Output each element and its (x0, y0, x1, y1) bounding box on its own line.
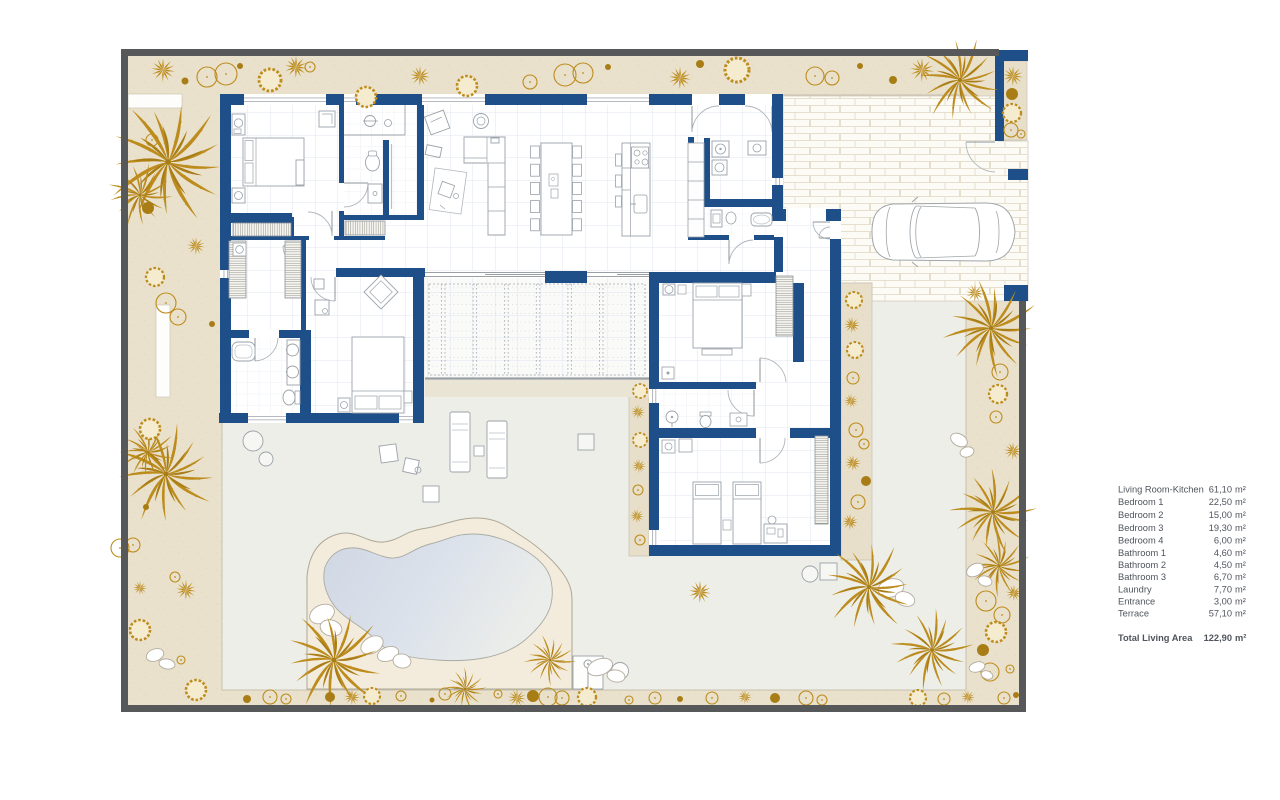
svg-text:22,50: 22,50 (1209, 497, 1232, 507)
svg-text:Bedroom 4: Bedroom 4 (1118, 536, 1163, 546)
svg-text:3,00: 3,00 (1214, 597, 1232, 607)
svg-text:19,30: 19,30 (1209, 523, 1232, 533)
svg-text:m²: m² (1235, 560, 1246, 570)
svg-text:122,90: 122,90 (1204, 633, 1232, 643)
svg-text:m²: m² (1235, 548, 1246, 558)
svg-text:m²: m² (1235, 572, 1246, 582)
svg-text:15,00: 15,00 (1209, 510, 1232, 520)
svg-text:m²: m² (1235, 485, 1246, 495)
svg-text:4,50: 4,50 (1214, 560, 1232, 570)
svg-text:m²: m² (1235, 597, 1246, 607)
svg-text:Living Room-Kitchen: Living Room-Kitchen (1118, 485, 1204, 495)
svg-text:57,10: 57,10 (1209, 609, 1232, 619)
svg-text:m²: m² (1235, 536, 1246, 546)
svg-text:Bathroom 3: Bathroom 3 (1118, 572, 1166, 582)
svg-text:7,70: 7,70 (1214, 585, 1232, 595)
svg-text:m²: m² (1235, 510, 1246, 520)
svg-text:m²: m² (1235, 585, 1246, 595)
svg-text:61,10: 61,10 (1209, 485, 1232, 495)
svg-text:Laundry: Laundry (1118, 585, 1152, 595)
svg-text:6,00: 6,00 (1214, 536, 1232, 546)
svg-text:Bathroom 2: Bathroom 2 (1118, 560, 1166, 570)
svg-text:m²: m² (1235, 633, 1246, 643)
svg-text:Bedroom 3: Bedroom 3 (1118, 523, 1163, 533)
svg-text:Bedroom 2: Bedroom 2 (1118, 510, 1163, 520)
svg-text:m²: m² (1235, 497, 1246, 507)
svg-text:Terrace: Terrace (1118, 609, 1149, 619)
svg-text:Bathroom 1: Bathroom 1 (1118, 548, 1166, 558)
svg-text:Total Living Area: Total Living Area (1118, 633, 1193, 643)
svg-text:m²: m² (1235, 523, 1246, 533)
svg-text:6,70: 6,70 (1214, 572, 1232, 582)
svg-text:Bedroom 1: Bedroom 1 (1118, 497, 1163, 507)
svg-text:4,60: 4,60 (1214, 548, 1232, 558)
svg-text:Entrance: Entrance (1118, 597, 1155, 607)
svg-text:m²: m² (1235, 609, 1246, 619)
